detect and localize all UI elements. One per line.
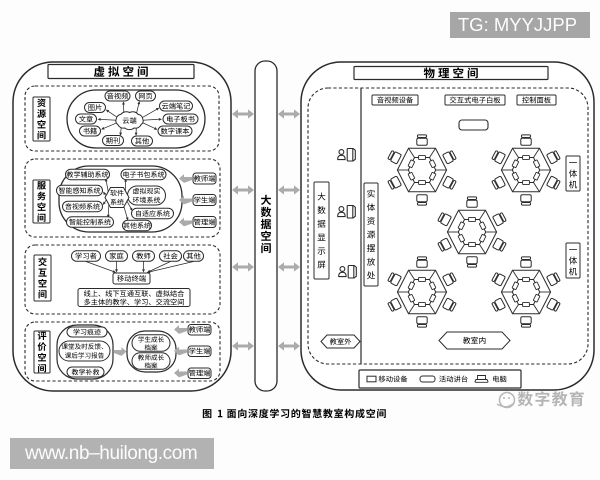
svg-text:www.nb–huilong.com: www.nb–huilong.com	[24, 443, 197, 464]
svg-text:TG: MYYJJPP: TG: MYYJJPP	[458, 14, 577, 35]
